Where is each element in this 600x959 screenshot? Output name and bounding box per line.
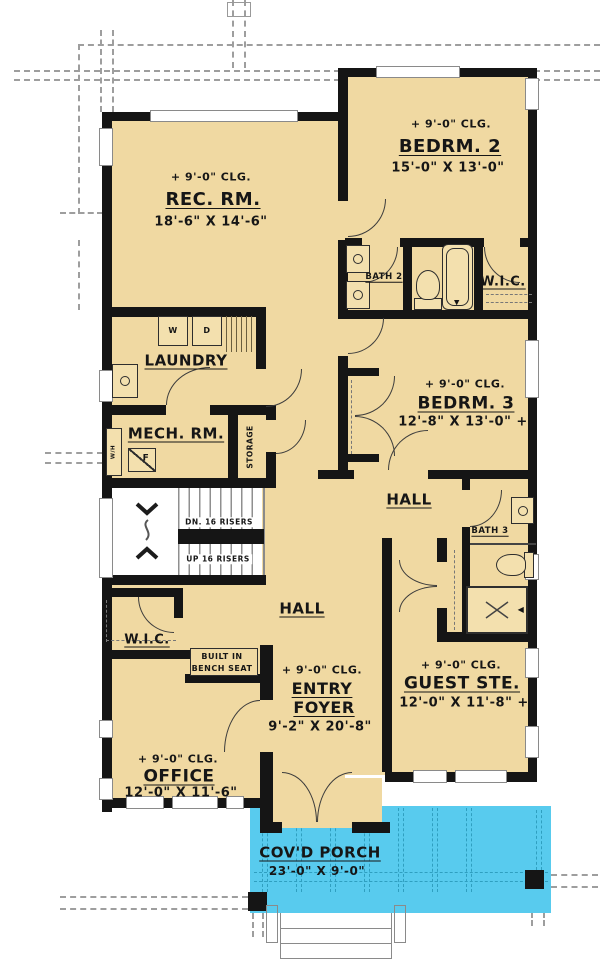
shower-head: ◀ xyxy=(518,606,525,614)
roof-overhang-line xyxy=(60,212,103,214)
wall xyxy=(338,68,348,201)
window xyxy=(525,340,539,398)
roof-overhang-line xyxy=(45,452,103,454)
stair-landing-wall xyxy=(178,529,264,544)
sink-basin xyxy=(353,290,363,300)
bedroom3-name: BEDRM. 3 xyxy=(418,396,515,413)
office-name: OFFICE xyxy=(143,769,214,786)
rec-room-dims: 18'-6" X 14'-6" xyxy=(154,216,267,229)
hall-lower-label: HALL xyxy=(279,602,324,617)
step-rail xyxy=(266,905,278,943)
wall xyxy=(102,575,266,585)
roof-overhang-line xyxy=(78,44,80,214)
porch-step-line xyxy=(280,943,392,944)
stairs-up-label: UP 16 RISERS xyxy=(184,554,252,564)
window xyxy=(150,110,298,122)
roof-overhang-line xyxy=(60,896,248,898)
wall xyxy=(462,479,470,490)
shower-x-mark xyxy=(482,596,512,624)
hall-upper-label: HALL xyxy=(386,493,431,508)
wall xyxy=(266,405,276,420)
guest-suite-name: GUEST STE. xyxy=(404,676,520,693)
entry-foyer-ceiling: + 9'-0" CLG. xyxy=(282,665,362,676)
dryer-label: D xyxy=(203,327,210,335)
bedroom3-ceiling: + 9'-0" CLG. xyxy=(425,379,505,390)
wall xyxy=(352,822,390,833)
rec-room-name: REC. RM. xyxy=(165,191,260,209)
window xyxy=(525,726,539,758)
window xyxy=(413,770,447,783)
wall xyxy=(102,650,190,659)
wall xyxy=(228,415,238,478)
porch-beam-line xyxy=(536,810,542,870)
roof-overhang-line xyxy=(551,886,598,888)
entry-foyer-name1: ENTRY xyxy=(292,681,353,697)
window xyxy=(99,778,113,800)
bathtub-inner xyxy=(446,248,469,306)
office-ceiling: + 9'-0" CLG. xyxy=(138,754,218,765)
wall xyxy=(382,538,392,772)
stair-direction-arrows xyxy=(132,500,162,564)
mech-room-label: MECH. RM. xyxy=(128,427,224,442)
counter-line xyxy=(470,543,536,545)
window xyxy=(525,78,539,110)
porch-step-line xyxy=(280,928,392,929)
covered-porch-name: COV'D PORCH xyxy=(259,846,381,861)
roof-overhang-line xyxy=(551,874,598,876)
wall xyxy=(210,405,266,415)
bench-label-line1: BUILT IN xyxy=(201,653,242,661)
chimney-outline xyxy=(227,2,251,17)
wall xyxy=(102,478,276,488)
covered-porch-dims: 23'-0" X 9'-0" xyxy=(269,865,365,877)
wall xyxy=(318,470,354,479)
porch-post xyxy=(248,892,267,911)
bedroom2-name: BEDRM. 2 xyxy=(399,138,501,156)
entry-foyer-dims: 9'-2" X 20'-8" xyxy=(268,721,372,734)
sink-basin xyxy=(518,506,528,516)
guest-suite-dims: 12'-0" X 11'-8" + xyxy=(399,697,529,710)
closet-line xyxy=(351,380,352,454)
wall xyxy=(437,538,447,562)
stairs-down-label: DN. 16 RISERS xyxy=(183,517,255,527)
floor-plan: DN. 16 RISERS UP 16 RISERS ▼ ◀ + 9'-0" C… xyxy=(0,0,600,959)
wall xyxy=(260,645,273,700)
entry-foyer-name2: FOYER xyxy=(293,700,354,716)
closet-line xyxy=(454,550,455,630)
wall xyxy=(520,238,537,247)
office-dims: 12'-0" X 11'-6" xyxy=(124,787,237,800)
porch-post xyxy=(525,870,544,889)
bedroom2-dims: 15'-0" X 13'-0" xyxy=(391,162,504,175)
roof-overhang-line xyxy=(112,30,114,112)
bath2-label: BATH 2 xyxy=(365,273,402,282)
toilet-bowl xyxy=(496,554,526,576)
rec-room-ceiling: + 9'-0" CLG. xyxy=(171,172,251,183)
porch-steps xyxy=(280,913,392,959)
roof-overhang-line xyxy=(78,44,600,46)
bench-label-line2: BENCH SEAT xyxy=(192,665,253,673)
closet-line xyxy=(486,294,532,295)
bedroom3-dims: 12'-8" X 13'-0" + xyxy=(398,416,528,429)
wall xyxy=(428,470,537,479)
window xyxy=(455,770,507,783)
washer-label: W xyxy=(168,327,177,335)
window xyxy=(99,720,113,738)
toilet-bowl xyxy=(416,270,440,300)
tub-drain: ▼ xyxy=(454,300,460,307)
wall xyxy=(256,307,266,369)
bath3-label: BATH 3 xyxy=(471,527,508,536)
window xyxy=(99,128,113,166)
wall xyxy=(345,368,379,376)
bedroom2-ceiling: + 9'-0" CLG. xyxy=(411,119,491,130)
roof-overhang-line xyxy=(78,240,80,310)
sink-basin xyxy=(120,376,130,386)
wall xyxy=(403,238,412,318)
window xyxy=(376,66,460,78)
window xyxy=(99,370,113,402)
roof-overhang-line xyxy=(262,913,264,937)
storage-label: STORAGE xyxy=(246,425,254,468)
water-heater-label: W/H xyxy=(111,445,117,459)
laundry-counter xyxy=(226,316,256,352)
wall xyxy=(102,405,166,415)
wic-bedroom2-label: W.I.C. xyxy=(480,276,525,289)
sink-basin xyxy=(353,254,363,264)
roof-overhang-line xyxy=(45,462,103,464)
step-rail xyxy=(394,905,406,943)
window xyxy=(525,648,539,678)
wall xyxy=(174,588,183,618)
wall xyxy=(102,588,183,597)
laundry-label: LAUNDRY xyxy=(145,354,228,369)
roof-overhang-line xyxy=(100,30,102,112)
closet-line xyxy=(486,302,532,303)
wall xyxy=(260,752,273,833)
wic-entry-label: W.I.C. xyxy=(124,634,169,647)
guest-suite-ceiling: + 9'-0" CLG. xyxy=(421,660,501,671)
roof-overhang-line xyxy=(60,908,248,910)
furnace-label: F xyxy=(143,455,150,464)
closet-line xyxy=(106,600,107,642)
roof-overhang-line xyxy=(252,913,254,937)
window xyxy=(99,498,113,578)
